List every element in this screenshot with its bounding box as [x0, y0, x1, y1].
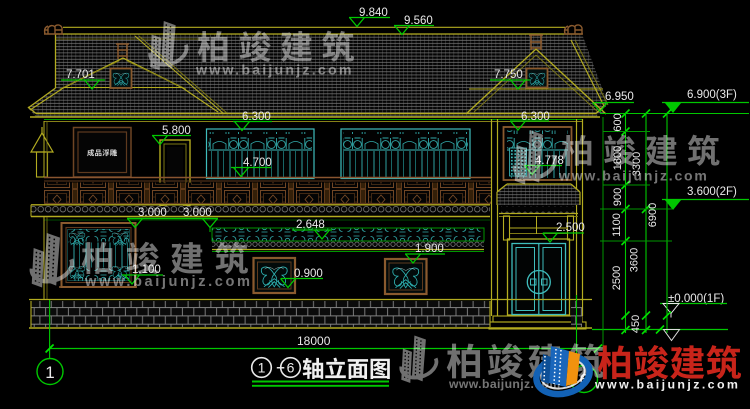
svg-text:3.600(2F): 3.600(2F) — [687, 186, 737, 198]
svg-text:www.baijunjz.com: www.baijunjz.com — [84, 274, 253, 290]
svg-text:6.950: 6.950 — [605, 91, 634, 103]
svg-text:3.000: 3.000 — [138, 207, 167, 219]
svg-text:18000: 18000 — [297, 334, 331, 348]
svg-text:www.baijunjz.com: www.baijunjz.com — [195, 63, 354, 79]
svg-text:1: 1 — [45, 363, 54, 382]
svg-text:6.900(3F): 6.900(3F) — [687, 89, 737, 101]
svg-text:600: 600 — [612, 113, 624, 131]
svg-text:900: 900 — [612, 188, 624, 206]
svg-text:2.500: 2.500 — [556, 222, 585, 234]
svg-text:1: 1 — [258, 360, 266, 376]
svg-text:1.900: 1.900 — [415, 243, 444, 255]
svg-text:www.baijunjz.com: www.baijunjz.com — [594, 378, 740, 392]
svg-text:2500: 2500 — [611, 266, 623, 290]
svg-text:2.648: 2.648 — [296, 219, 325, 231]
svg-text:6900: 6900 — [647, 203, 659, 227]
svg-text:450: 450 — [630, 315, 642, 333]
svg-text:7.750: 7.750 — [494, 69, 523, 81]
svg-text:7.701: 7.701 — [66, 69, 95, 81]
svg-text:3.000: 3.000 — [183, 207, 212, 219]
svg-text:1100: 1100 — [611, 213, 623, 237]
svg-text:6: 6 — [287, 360, 295, 376]
svg-text:www.baijunjz.com: www.baijunjz.com — [558, 168, 709, 184]
svg-text:3600: 3600 — [629, 248, 641, 272]
